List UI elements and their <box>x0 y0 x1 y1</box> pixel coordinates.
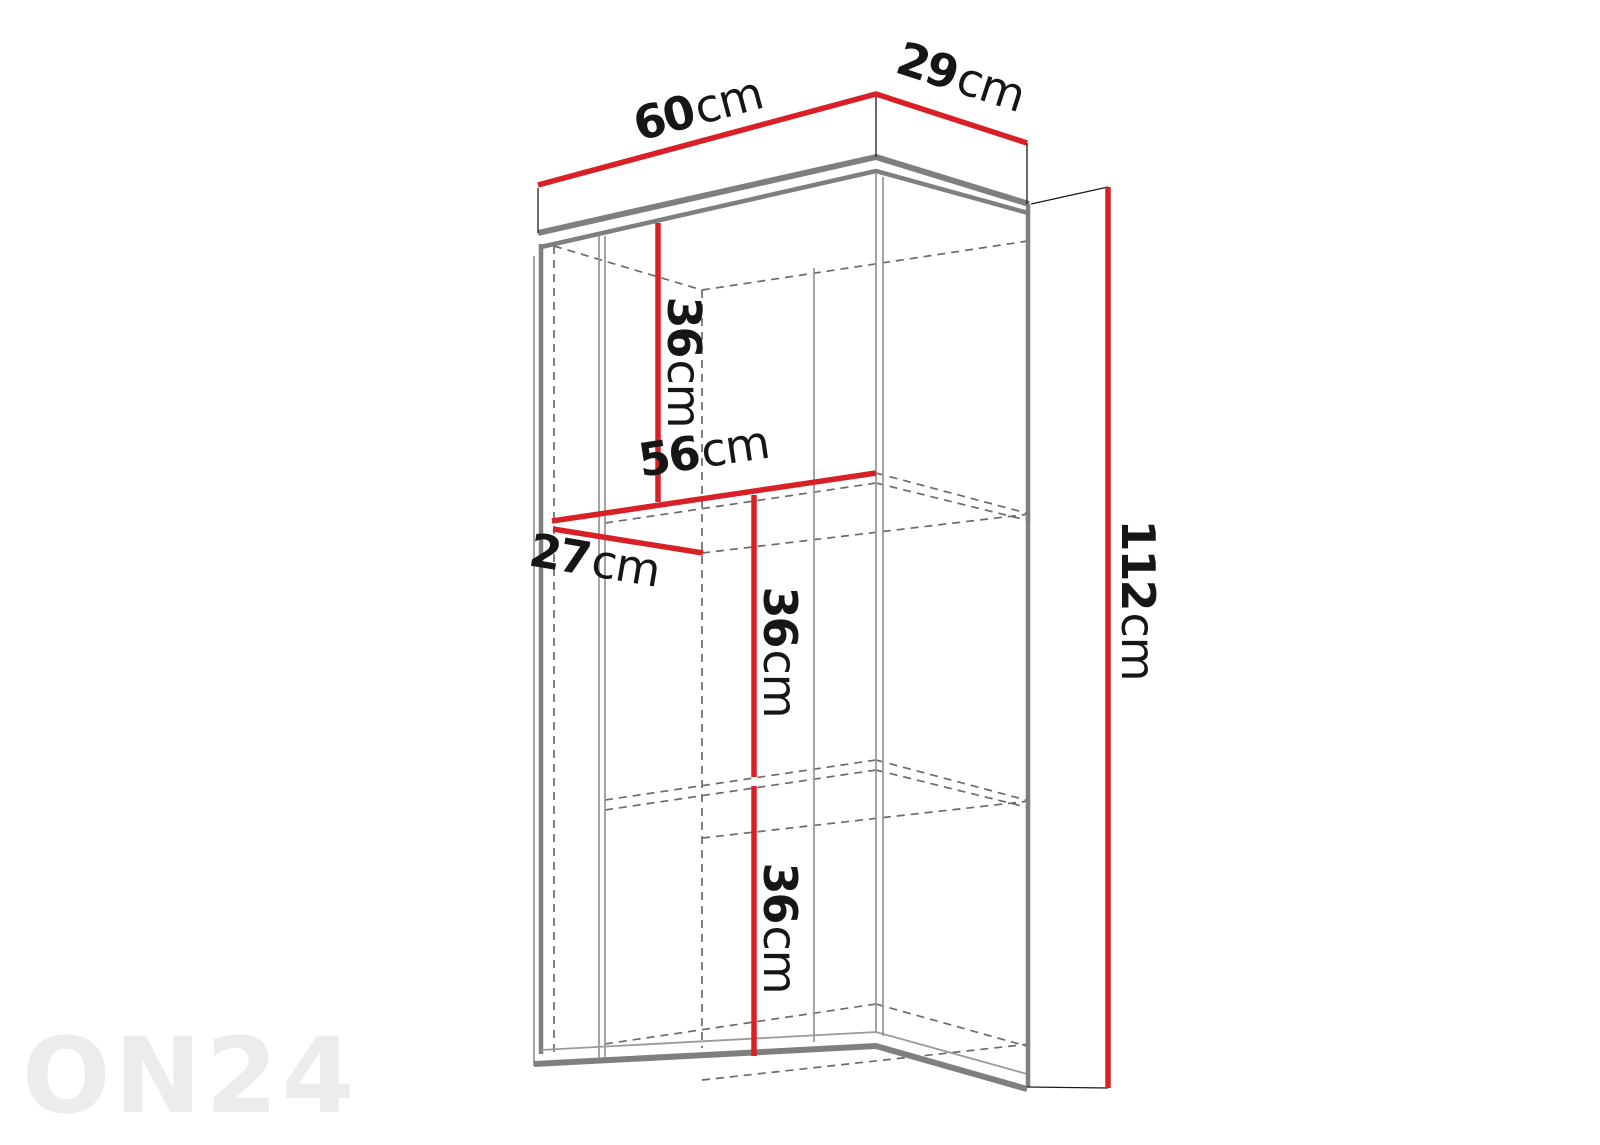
outer-height-label: 112cm <box>1111 519 1165 680</box>
interior-top-depth-edge <box>554 246 702 290</box>
interior-visible-edges <box>599 171 883 1060</box>
diagram-canvas: ON24 <box>0 0 1600 1145</box>
cabinet-dimension-diagram: ON24 <box>0 0 1600 1145</box>
shelf-1-hidden-outline <box>605 473 1030 553</box>
outer-width-label: 60cm <box>628 65 769 151</box>
dim-line-outer-width-depth <box>538 94 1027 185</box>
compartment-middle-label: 36cm <box>753 586 807 717</box>
watermark-logo: ON24 <box>22 1015 358 1137</box>
shelf-2-hidden-outline <box>605 760 1030 838</box>
compartment-bottom-label: 36cm <box>753 862 807 993</box>
compartment-top-label: 36cm <box>657 296 711 427</box>
dim-line-inner-width <box>552 473 876 521</box>
interior-top-back-edge <box>702 241 1028 290</box>
height-ext-bottom <box>1027 1087 1108 1088</box>
outer-depth-label: 29cm <box>890 31 1031 123</box>
height-ext-top <box>1031 187 1108 204</box>
